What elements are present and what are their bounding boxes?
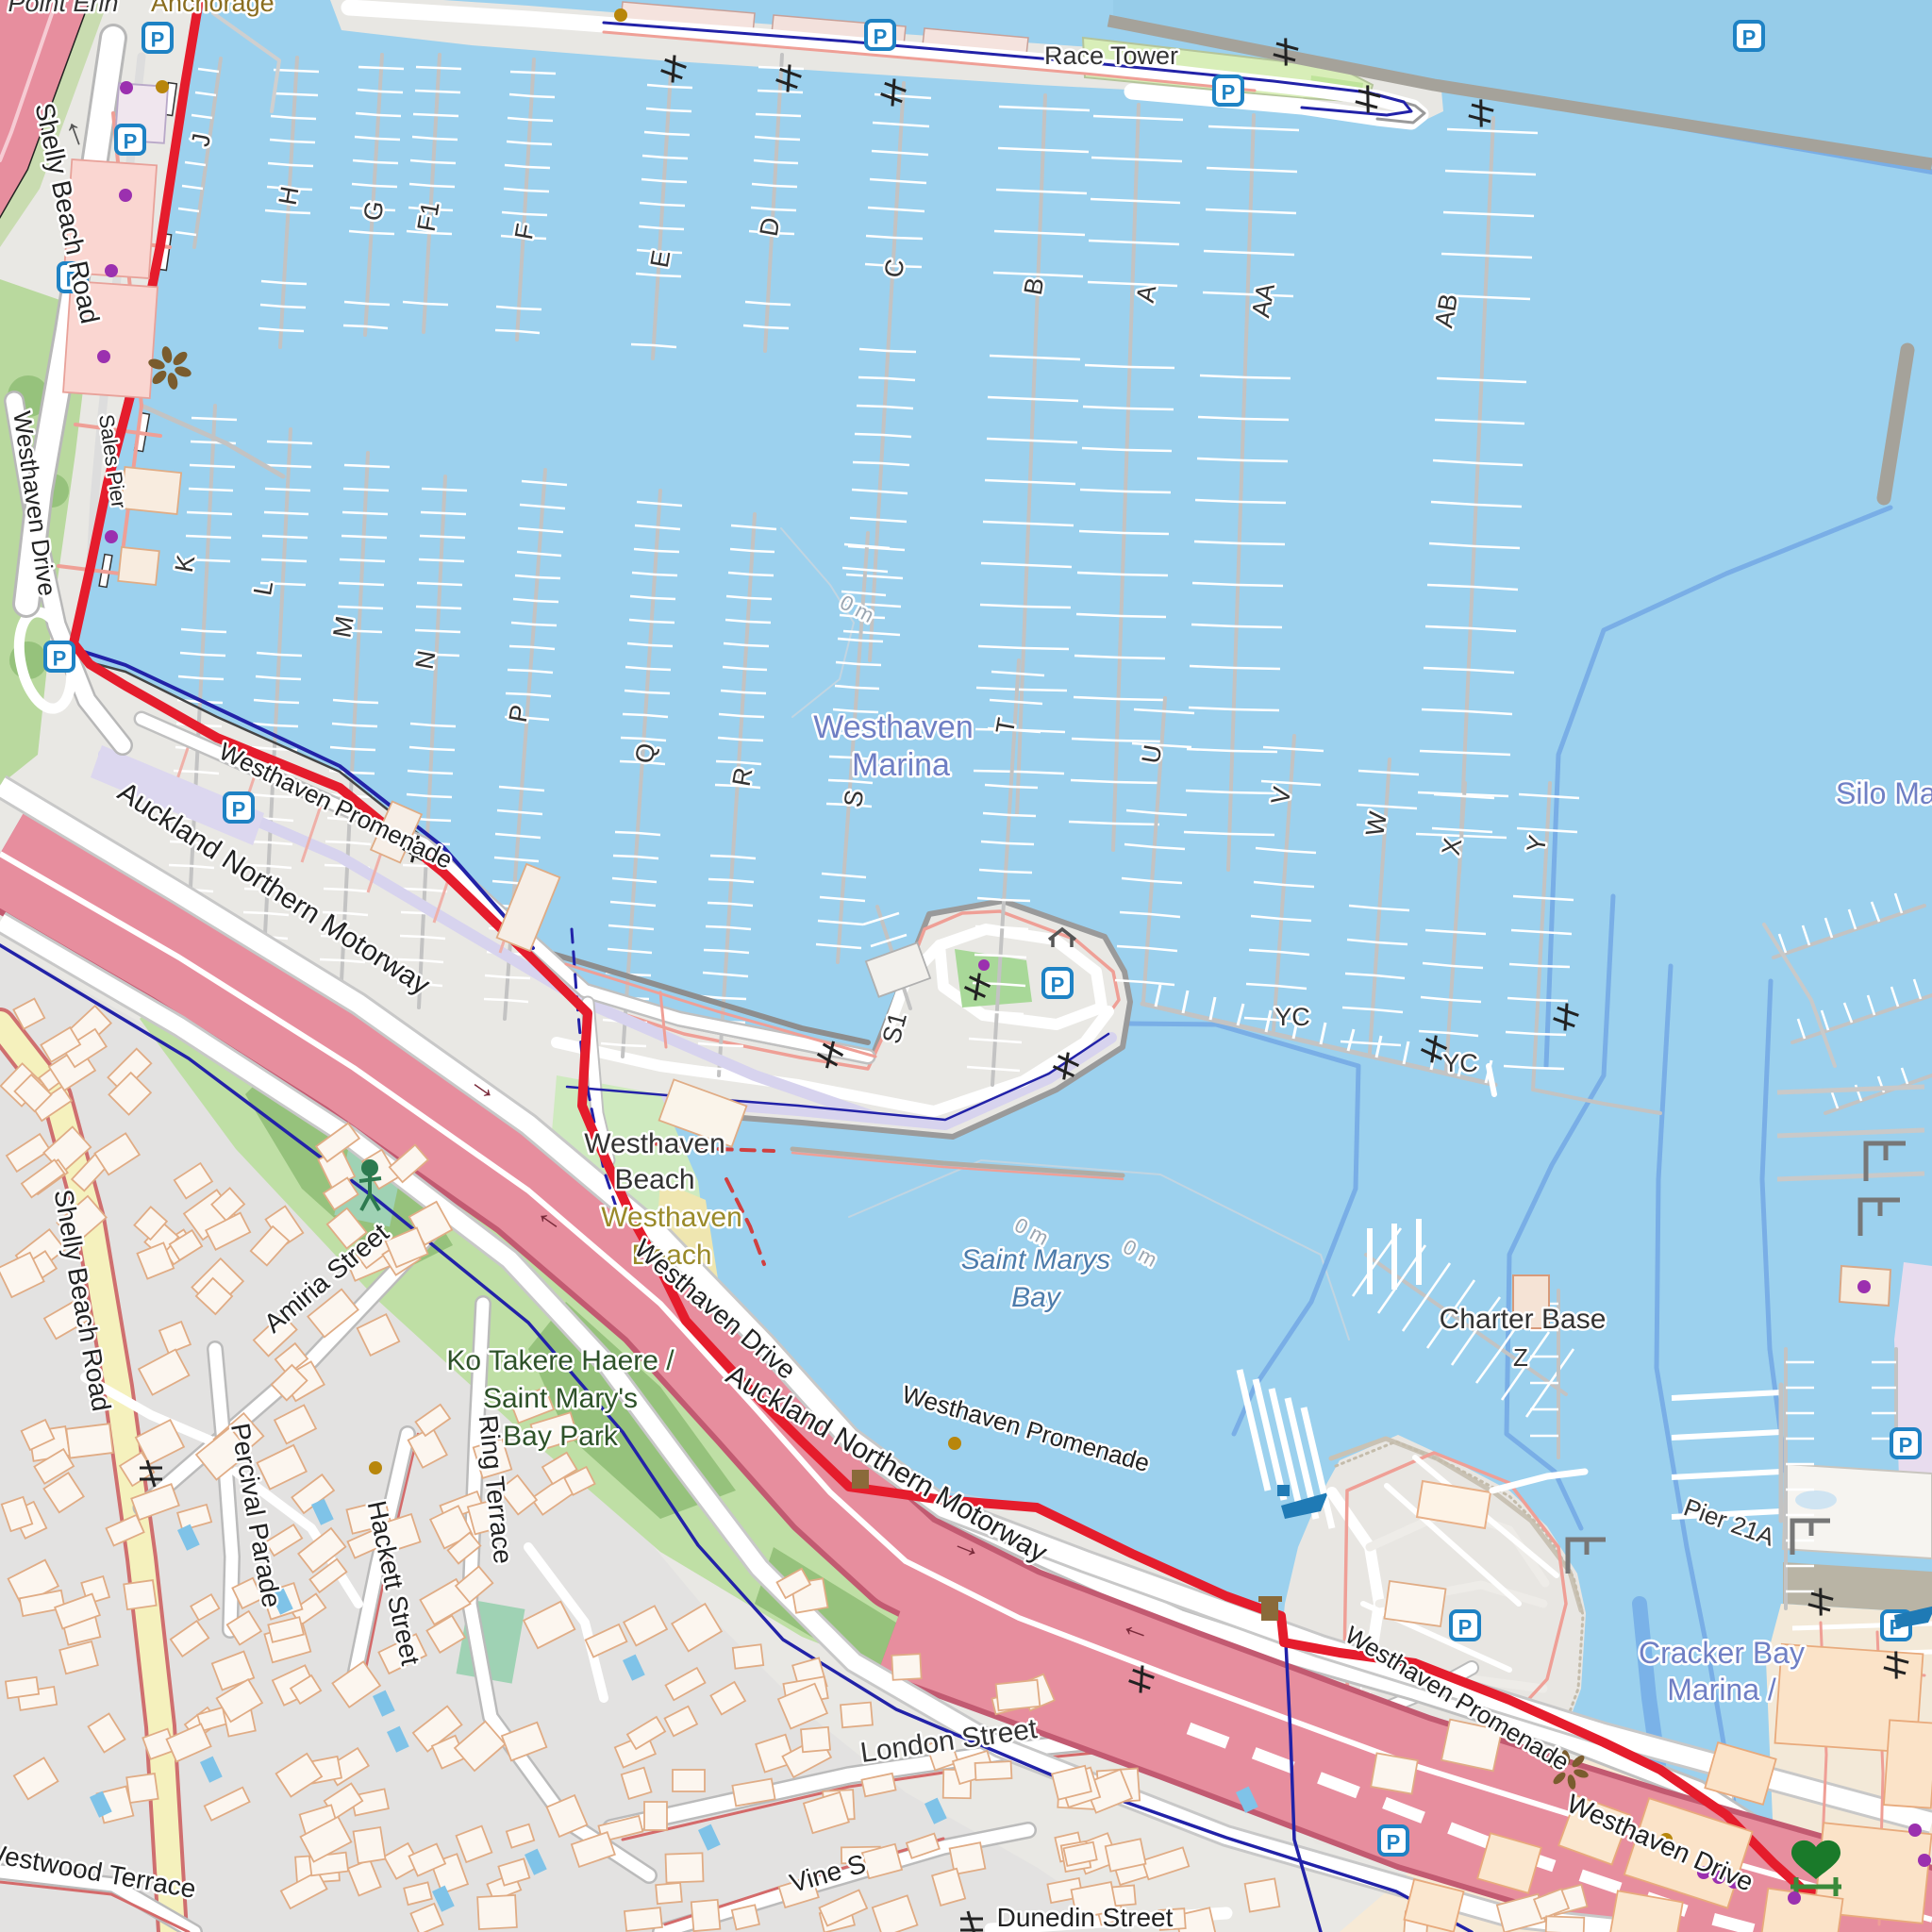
svg-text:Marina /: Marina / (1667, 1673, 1776, 1707)
svg-text:P: P (874, 25, 888, 49)
svg-text:AA: AA (1246, 281, 1280, 320)
svg-text:Dunedin Street: Dunedin Street (997, 1903, 1174, 1932)
svg-text:P: P (124, 130, 138, 154)
svg-text:P: P (1458, 1616, 1473, 1640)
svg-text:P: P (151, 28, 165, 52)
svg-text:P: P (1387, 1831, 1401, 1855)
svg-text:Saint Marys: Saint Marys (961, 1244, 1110, 1275)
svg-text:AB: AB (1429, 291, 1463, 330)
svg-text:P: P (1899, 1434, 1913, 1457)
svg-text:Westhaven: Westhaven (601, 1202, 742, 1233)
svg-text:Ko Takere Haere /: Ko Takere Haere / (446, 1345, 675, 1376)
svg-text:P: P (232, 798, 246, 822)
svg-text:P: P (1742, 26, 1757, 50)
svg-text:Z: Z (1513, 1343, 1528, 1372)
svg-text:Marina: Marina (852, 747, 950, 783)
svg-text:Westhaven: Westhaven (813, 709, 973, 745)
svg-text:P: P (1222, 81, 1236, 105)
svg-text:Point Erin: Point Erin (8, 0, 118, 17)
svg-text:Bay Park: Bay Park (503, 1421, 619, 1452)
svg-text:P: P (1051, 974, 1065, 997)
svg-text:Saint Mary's: Saint Mary's (483, 1383, 638, 1414)
svg-text:YC: YC (1274, 1003, 1310, 1031)
svg-text:Cracker Bay: Cracker Bay (1639, 1636, 1805, 1670)
svg-text:Anchorage: Anchorage (151, 0, 275, 17)
svg-text:YC: YC (1442, 1049, 1478, 1077)
svg-text:Silo Ma: Silo Ma (1836, 776, 1932, 810)
svg-text:Westhaven: Westhaven (584, 1128, 725, 1159)
svg-text:Bay: Bay (1011, 1282, 1062, 1313)
svg-text:Charter Base: Charter Base (1440, 1304, 1607, 1335)
svg-text:F1: F1 (412, 199, 445, 233)
svg-text:Beach: Beach (614, 1164, 694, 1195)
svg-text:P: P (53, 647, 67, 671)
svg-text:Race Tower: Race Tower (1044, 42, 1178, 70)
